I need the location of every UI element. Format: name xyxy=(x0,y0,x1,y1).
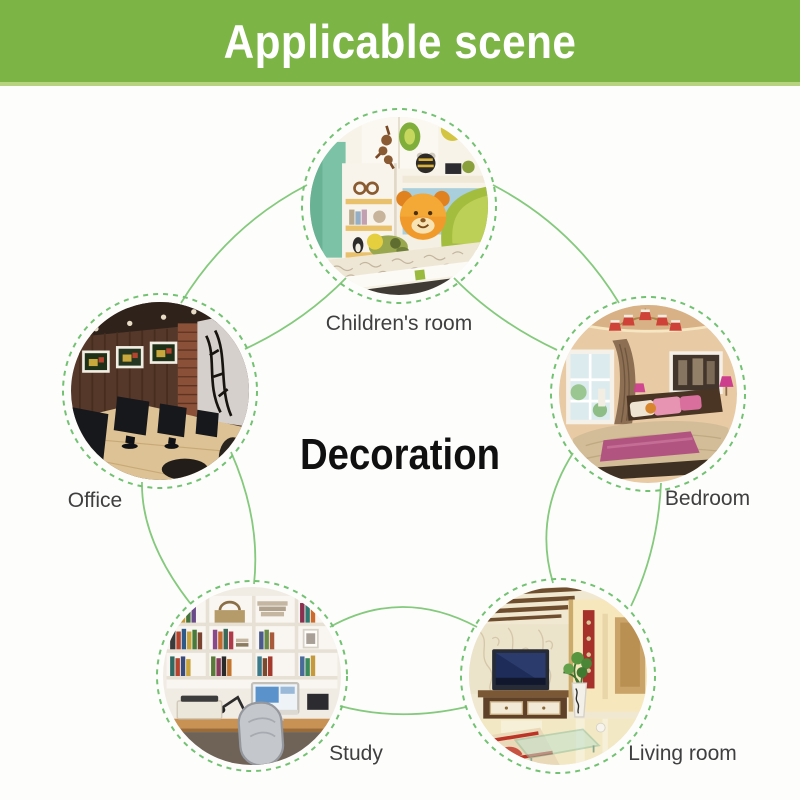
scene-label-children-room: Children's room xyxy=(299,312,499,336)
children-room-photo xyxy=(310,117,488,295)
wall-picture xyxy=(671,353,721,392)
office-chair xyxy=(237,701,284,765)
scene-label-office: Office xyxy=(35,489,155,513)
bedroom-photo xyxy=(559,305,737,483)
office-photo xyxy=(71,302,249,480)
living-room-photo xyxy=(469,587,647,765)
scene-label-living-room: Living room xyxy=(610,742,755,766)
scene-label-bedroom: Bedroom xyxy=(645,487,770,511)
scene-label-study: Study xyxy=(303,742,409,766)
bee-plush xyxy=(416,153,436,173)
applicable-scene-infographic: Applicable scene xyxy=(0,0,800,800)
tv xyxy=(492,649,549,690)
center-title: Decoration xyxy=(268,430,532,480)
study-photo xyxy=(163,587,341,765)
